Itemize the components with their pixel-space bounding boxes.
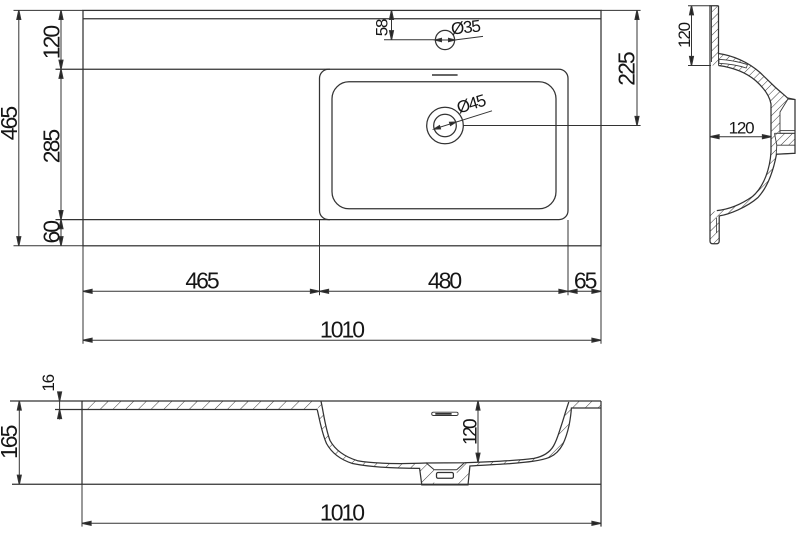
- svg-text:65: 65: [574, 268, 597, 294]
- svg-text:120: 120: [460, 419, 481, 445]
- svg-text:465: 465: [0, 107, 22, 141]
- svg-text:465: 465: [185, 268, 219, 294]
- svg-text:285: 285: [38, 130, 64, 164]
- svg-text:58: 58: [372, 19, 391, 36]
- svg-text:60: 60: [38, 221, 64, 244]
- svg-text:480: 480: [428, 268, 462, 294]
- svg-text:1010: 1010: [320, 317, 364, 343]
- svg-text:120: 120: [38, 26, 64, 60]
- svg-text:Ø35: Ø35: [450, 16, 481, 38]
- svg-text:16: 16: [39, 374, 58, 391]
- svg-text:120: 120: [729, 118, 755, 137]
- svg-text:165: 165: [0, 425, 22, 459]
- svg-text:225: 225: [613, 52, 639, 86]
- svg-text:1010: 1010: [320, 500, 364, 526]
- svg-text:120: 120: [675, 22, 694, 48]
